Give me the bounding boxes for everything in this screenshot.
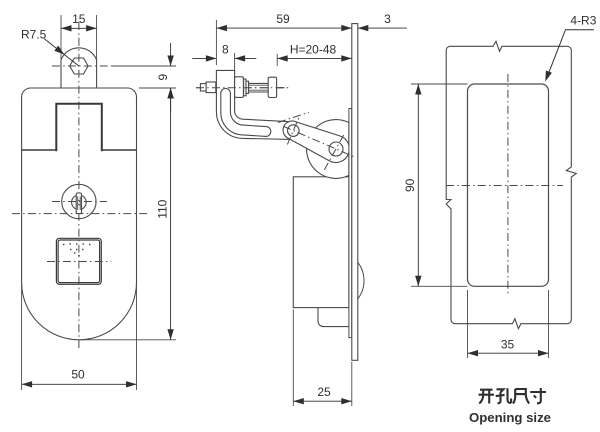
svg-text:3: 3 <box>384 12 391 26</box>
svg-text:8: 8 <box>222 43 229 57</box>
svg-text:90: 90 <box>403 178 417 192</box>
svg-text:15: 15 <box>72 12 86 26</box>
svg-text:9: 9 <box>156 74 170 81</box>
svg-text:35: 35 <box>501 338 515 352</box>
svg-text:59: 59 <box>276 12 290 26</box>
svg-text:H=20-48: H=20-48 <box>290 43 337 57</box>
svg-text:50: 50 <box>71 368 85 382</box>
svg-text:110: 110 <box>155 199 169 218</box>
svg-text:Opening size: Opening size <box>469 410 551 425</box>
svg-text:4-R3: 4-R3 <box>570 14 596 28</box>
svg-text:R7.5: R7.5 <box>21 28 47 42</box>
svg-text:25: 25 <box>317 385 331 399</box>
